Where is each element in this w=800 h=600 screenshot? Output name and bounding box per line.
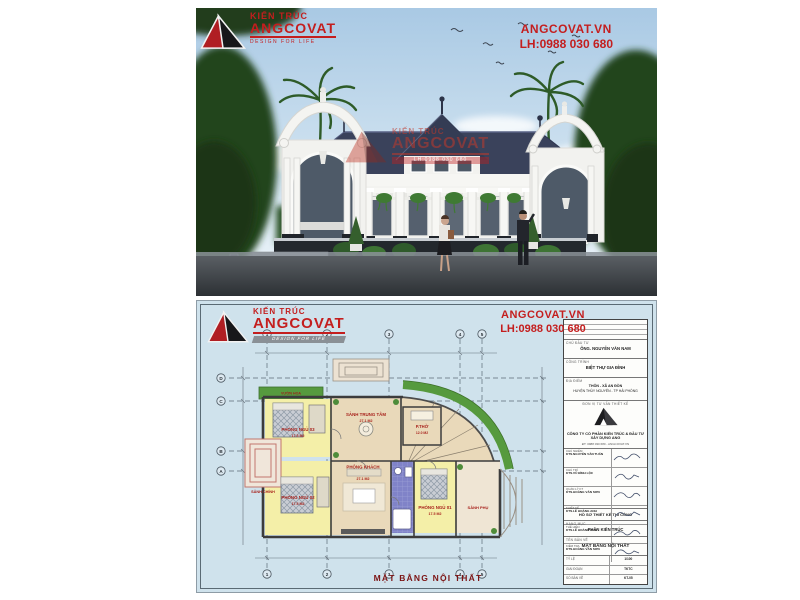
render-contact: ANGCOVAT.VN LH:0988 030 680 (520, 22, 613, 52)
sheet-number-value: KT-05 (610, 575, 647, 584)
scale-label: TỶ LỆ (564, 556, 610, 565)
sig-name: KTS.NGUYỄN VĂN TUẤN (566, 453, 609, 456)
driveway (196, 252, 657, 296)
stage-label: GIAI ĐOẠN (564, 566, 610, 575)
exterior-render: KIẾN TRÚC ANGCOVAT DESIGN FOR LIFE ANGCO… (196, 8, 657, 296)
signature-row: CHỦ NHIỆM KTS.NGUYỄN VĂN TUẤN (564, 449, 647, 468)
brand-name: ANGCOVAT (253, 316, 345, 334)
watermark-hotline: LH:0988 030 680 (392, 157, 489, 164)
room-area-bedroom2: 17.5 M2 (292, 502, 305, 506)
project-section: CÔNG TRÌNH BIỆT THỰ GIA ĐÌNH (564, 359, 647, 378)
signature-scribble (612, 472, 642, 481)
room-area-living: 27.1 M2 (357, 477, 370, 481)
room-area-worship: 12.0 M2 (416, 431, 428, 435)
sig-name: KTS.VŨ ĐÌNH LỘC (566, 472, 609, 475)
location-line1: THÔN - XÃ AN ĐỒN (566, 384, 645, 388)
room-label-bedroom1: PHÒNG NGỦ 01 (418, 505, 452, 510)
consultant-label: ĐƠN VỊ TƯ VẤN THIẾT KẾ (566, 402, 645, 406)
company-name: CÔNG TY CỔ PHẦN KIẾN TRÚC & ĐẦU TƯ XÂY D… (566, 432, 645, 441)
room-label-bedroom3: PHÒNG NGỦ 03 (281, 427, 315, 432)
room-area-bedroom1: 17.5 M2 (429, 512, 442, 516)
room-side-porch (456, 461, 500, 533)
consultant-section: ĐƠN VỊ TƯ VẤN THIẾT KẾ CÔNG TY CỔ PHẦN K… (564, 401, 647, 449)
project-label: CÔNG TRÌNH (566, 360, 645, 364)
brand-website: ANGCOVAT.VN (520, 22, 613, 37)
sig-name: KTS.HOÀNG VĂN SƠN (566, 491, 609, 494)
room-label-side-porch: SẢNH PHỤ (468, 505, 489, 510)
page-canvas: KIẾN TRÚC ANGCOVAT DESIGN FOR LIFE ANGCO… (0, 0, 800, 600)
signature-scribble (612, 453, 642, 462)
stage-row: GIAI ĐOẠN TKTC (564, 566, 647, 576)
signature-scribble (612, 529, 642, 538)
grid-col-label: 5 (481, 332, 484, 337)
angcovat-triangle-logo-icon (593, 407, 619, 426)
floor-plan-sheet: 1 2 3 4 5 1 2 3 4 5 D C B A VƯỜ (196, 300, 657, 593)
angcovat-triangle-logo-icon (200, 12, 246, 52)
plan-caption: MẶT BẰNG NỘI THẤT (374, 572, 483, 583)
location-line2: HUYỆN THỦY NGUYÊN - TP HẢI PHÒNG (566, 389, 645, 393)
brand-tagline: DESIGN FOR LIFE (252, 336, 346, 343)
owner-label: CHỦ ĐẦU TƯ (566, 341, 645, 345)
angcovat-triangle-logo-icon (207, 308, 249, 346)
owner-section: CHỦ ĐẦU TƯ ÔNG. NGUYỄN VĂN NAM (564, 340, 647, 359)
sheet-number-row: SỐ BẢN VẼ KT-05 (564, 575, 647, 584)
grid-col-label: 3 (388, 332, 391, 337)
stage-value: TKTC (610, 566, 647, 575)
watermark-name: ANGCOVAT (392, 136, 489, 155)
title-block: CHỦ ĐẦU TƯ ÔNG. NGUYỄN VĂN NAM CÔNG TRÌN… (563, 319, 648, 585)
center-watermark: KIẾN TRÚC ANGCOVAT LH:0988 030 680 (344, 128, 489, 166)
grid-col-label: 1 (266, 572, 269, 577)
room-label-wc: WC (399, 520, 406, 524)
brand-name: ANGCOVAT (250, 21, 336, 38)
project-value: BIỆT THỰ GIA ĐÌNH (566, 365, 645, 370)
signature-scribble (612, 548, 642, 557)
signature-scribble (612, 491, 642, 500)
plan-brand-logo: KIẾN TRÚC ANGCOVAT DESIGN FOR LIFE (207, 308, 345, 346)
garden-label: VƯỜN HOA (281, 391, 301, 396)
room-label-worship: P.THỜ (416, 424, 429, 429)
room-label-bedroom2: PHÒNG NGỦ 02 (281, 495, 315, 500)
brand-hotline: LH:0988 030 680 (495, 323, 591, 337)
grid-col-label: 2 (326, 572, 329, 577)
brand-hotline: LH:0988 030 680 (520, 37, 613, 52)
brand-tagline: DESIGN FOR LIFE (250, 40, 336, 45)
signature-row: QUẢN LÝ KT KTS.HOÀNG VĂN SƠN (564, 487, 647, 506)
owner-value: ÔNG. NGUYỄN VĂN NAM (566, 346, 645, 351)
room-area-hall: 27.1 M2 (360, 419, 373, 423)
location-label: ĐỊA ĐIỂM (566, 379, 645, 383)
company-contact: ĐT: 0988 030 680 - ANGCOVAT.VN (566, 442, 645, 446)
grid-col-label: 4 (459, 332, 462, 337)
angcovat-triangle-logo-icon (344, 128, 388, 166)
room-label-main-porch: SẢNH CHÍNH (251, 489, 275, 494)
signature-scribble (612, 510, 642, 519)
room-label-hall: SẢNH TRUNG TÂM (346, 412, 386, 417)
render-brand-logo: KIẾN TRÚC ANGCOVAT DESIGN FOR LIFE (200, 12, 336, 52)
signature-row: CHỦ TRÌ KTS.VŨ ĐÌNH LỘC (564, 468, 647, 487)
sheet-number-label: SỐ BẢN VẼ (564, 575, 610, 584)
brand-website: ANGCOVAT.VN (495, 309, 591, 323)
signature-table: CHỦ NHIỆM KTS.NGUYỄN VĂN TUẤN CHỦ TRÌ KT… (564, 449, 647, 509)
top-porch-steps (333, 359, 389, 381)
main-porch-steps (245, 439, 281, 487)
plan-contact: ANGCOVAT.VN LH:0988 030 680 (495, 309, 591, 337)
room-label-living: PHÒNG KHÁCH (346, 465, 379, 470)
location-section: ĐỊA ĐIỂM THÔN - XÃ AN ĐỒN HUYỆN THỦY NGU… (564, 378, 647, 401)
side-porch-steps (500, 469, 522, 537)
room-area-bedroom3: 17.5 M2 (292, 434, 305, 438)
